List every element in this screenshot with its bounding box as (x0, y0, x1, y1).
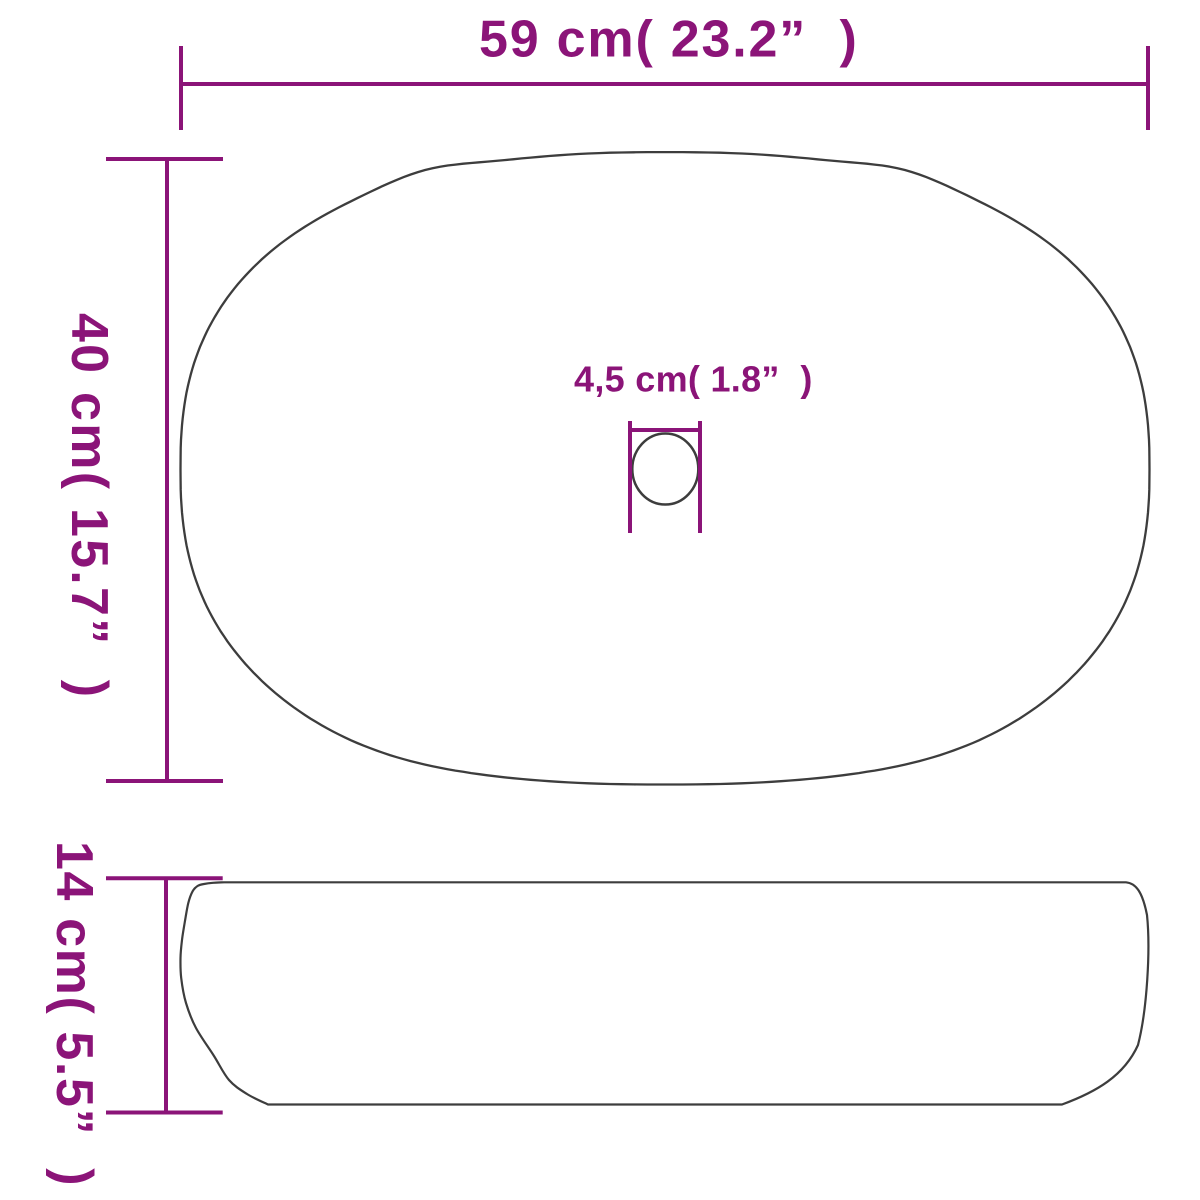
svg-text:14 cm( 5.5” ): 14 cm( 5.5” ) (45, 841, 103, 1187)
svg-text:4,5 cm( 1.8” ): 4,5 cm( 1.8” ) (574, 359, 813, 400)
svg-text:59 cm( 23.2” ): 59 cm( 23.2” ) (479, 11, 859, 69)
svg-text:40 cm( 15.7” ): 40 cm( 15.7” ) (60, 313, 118, 699)
